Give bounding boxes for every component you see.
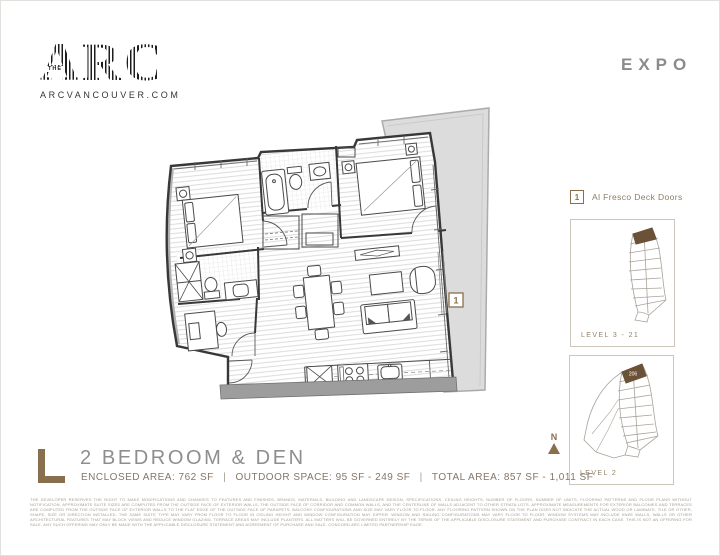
outdoor-space-value: 95 SF - 249 SF: [336, 472, 411, 483]
legend-marker-box: 1: [570, 190, 584, 204]
keyplan-levels-3-21-drawing: [571, 220, 674, 346]
arc-logo: ARC THE ARCVANCOUVER.COM: [40, 36, 170, 100]
enclosed-area-value: 762 SF: [179, 472, 214, 483]
outdoor-space-label: OUTDOOR SPACE:: [235, 472, 332, 483]
arc-logo-the: THE: [47, 66, 63, 72]
north-compass: N: [545, 432, 563, 454]
arc-logo-wordmark: ARC: [40, 36, 170, 88]
keyplan-level-2: 206 LEVEL 2: [569, 355, 674, 485]
unit-stats: ENCLOSED AREA: 762 SF | OUTDOOR SPACE: 9…: [81, 472, 593, 483]
legal-disclaimer: THE DEVELOPER RESERVES THE RIGHT TO MAKE…: [30, 497, 692, 527]
floorplan-drawing: 1: [130, 95, 520, 455]
total-area-label: TOTAL AREA:: [432, 472, 501, 483]
unit-title: 2 BEDROOM & DEN: [80, 447, 306, 470]
keyplan-levels-3-21: LEVEL 3 - 21: [570, 219, 675, 347]
legend-label: Al Fresco Deck Doors: [592, 192, 683, 202]
keyplan-level-2-drawing: 206: [570, 356, 673, 484]
legend: 1 Al Fresco Deck Doors: [570, 190, 683, 204]
stats-separator: |: [420, 472, 423, 483]
total-area-value: 857 SF - 1,011 SF: [504, 472, 593, 483]
north-arrow-icon: [548, 443, 560, 454]
keyplan-levels-3-21-label: LEVEL 3 - 21: [581, 332, 639, 339]
plan-letter-L: [38, 449, 65, 483]
stats-separator: |: [223, 472, 226, 483]
enclosed-area-label: ENCLOSED AREA:: [81, 472, 175, 483]
floorplan-sheet: ARC THE ARCVANCOUVER.COM EXPO: [0, 0, 720, 556]
series-title: EXPO: [621, 55, 692, 75]
svg-text:1: 1: [453, 296, 458, 306]
keyplan-highlighted-unit-number: 206: [629, 372, 638, 378]
north-label: N: [545, 432, 563, 442]
plan-marker-1: 1: [449, 293, 463, 307]
